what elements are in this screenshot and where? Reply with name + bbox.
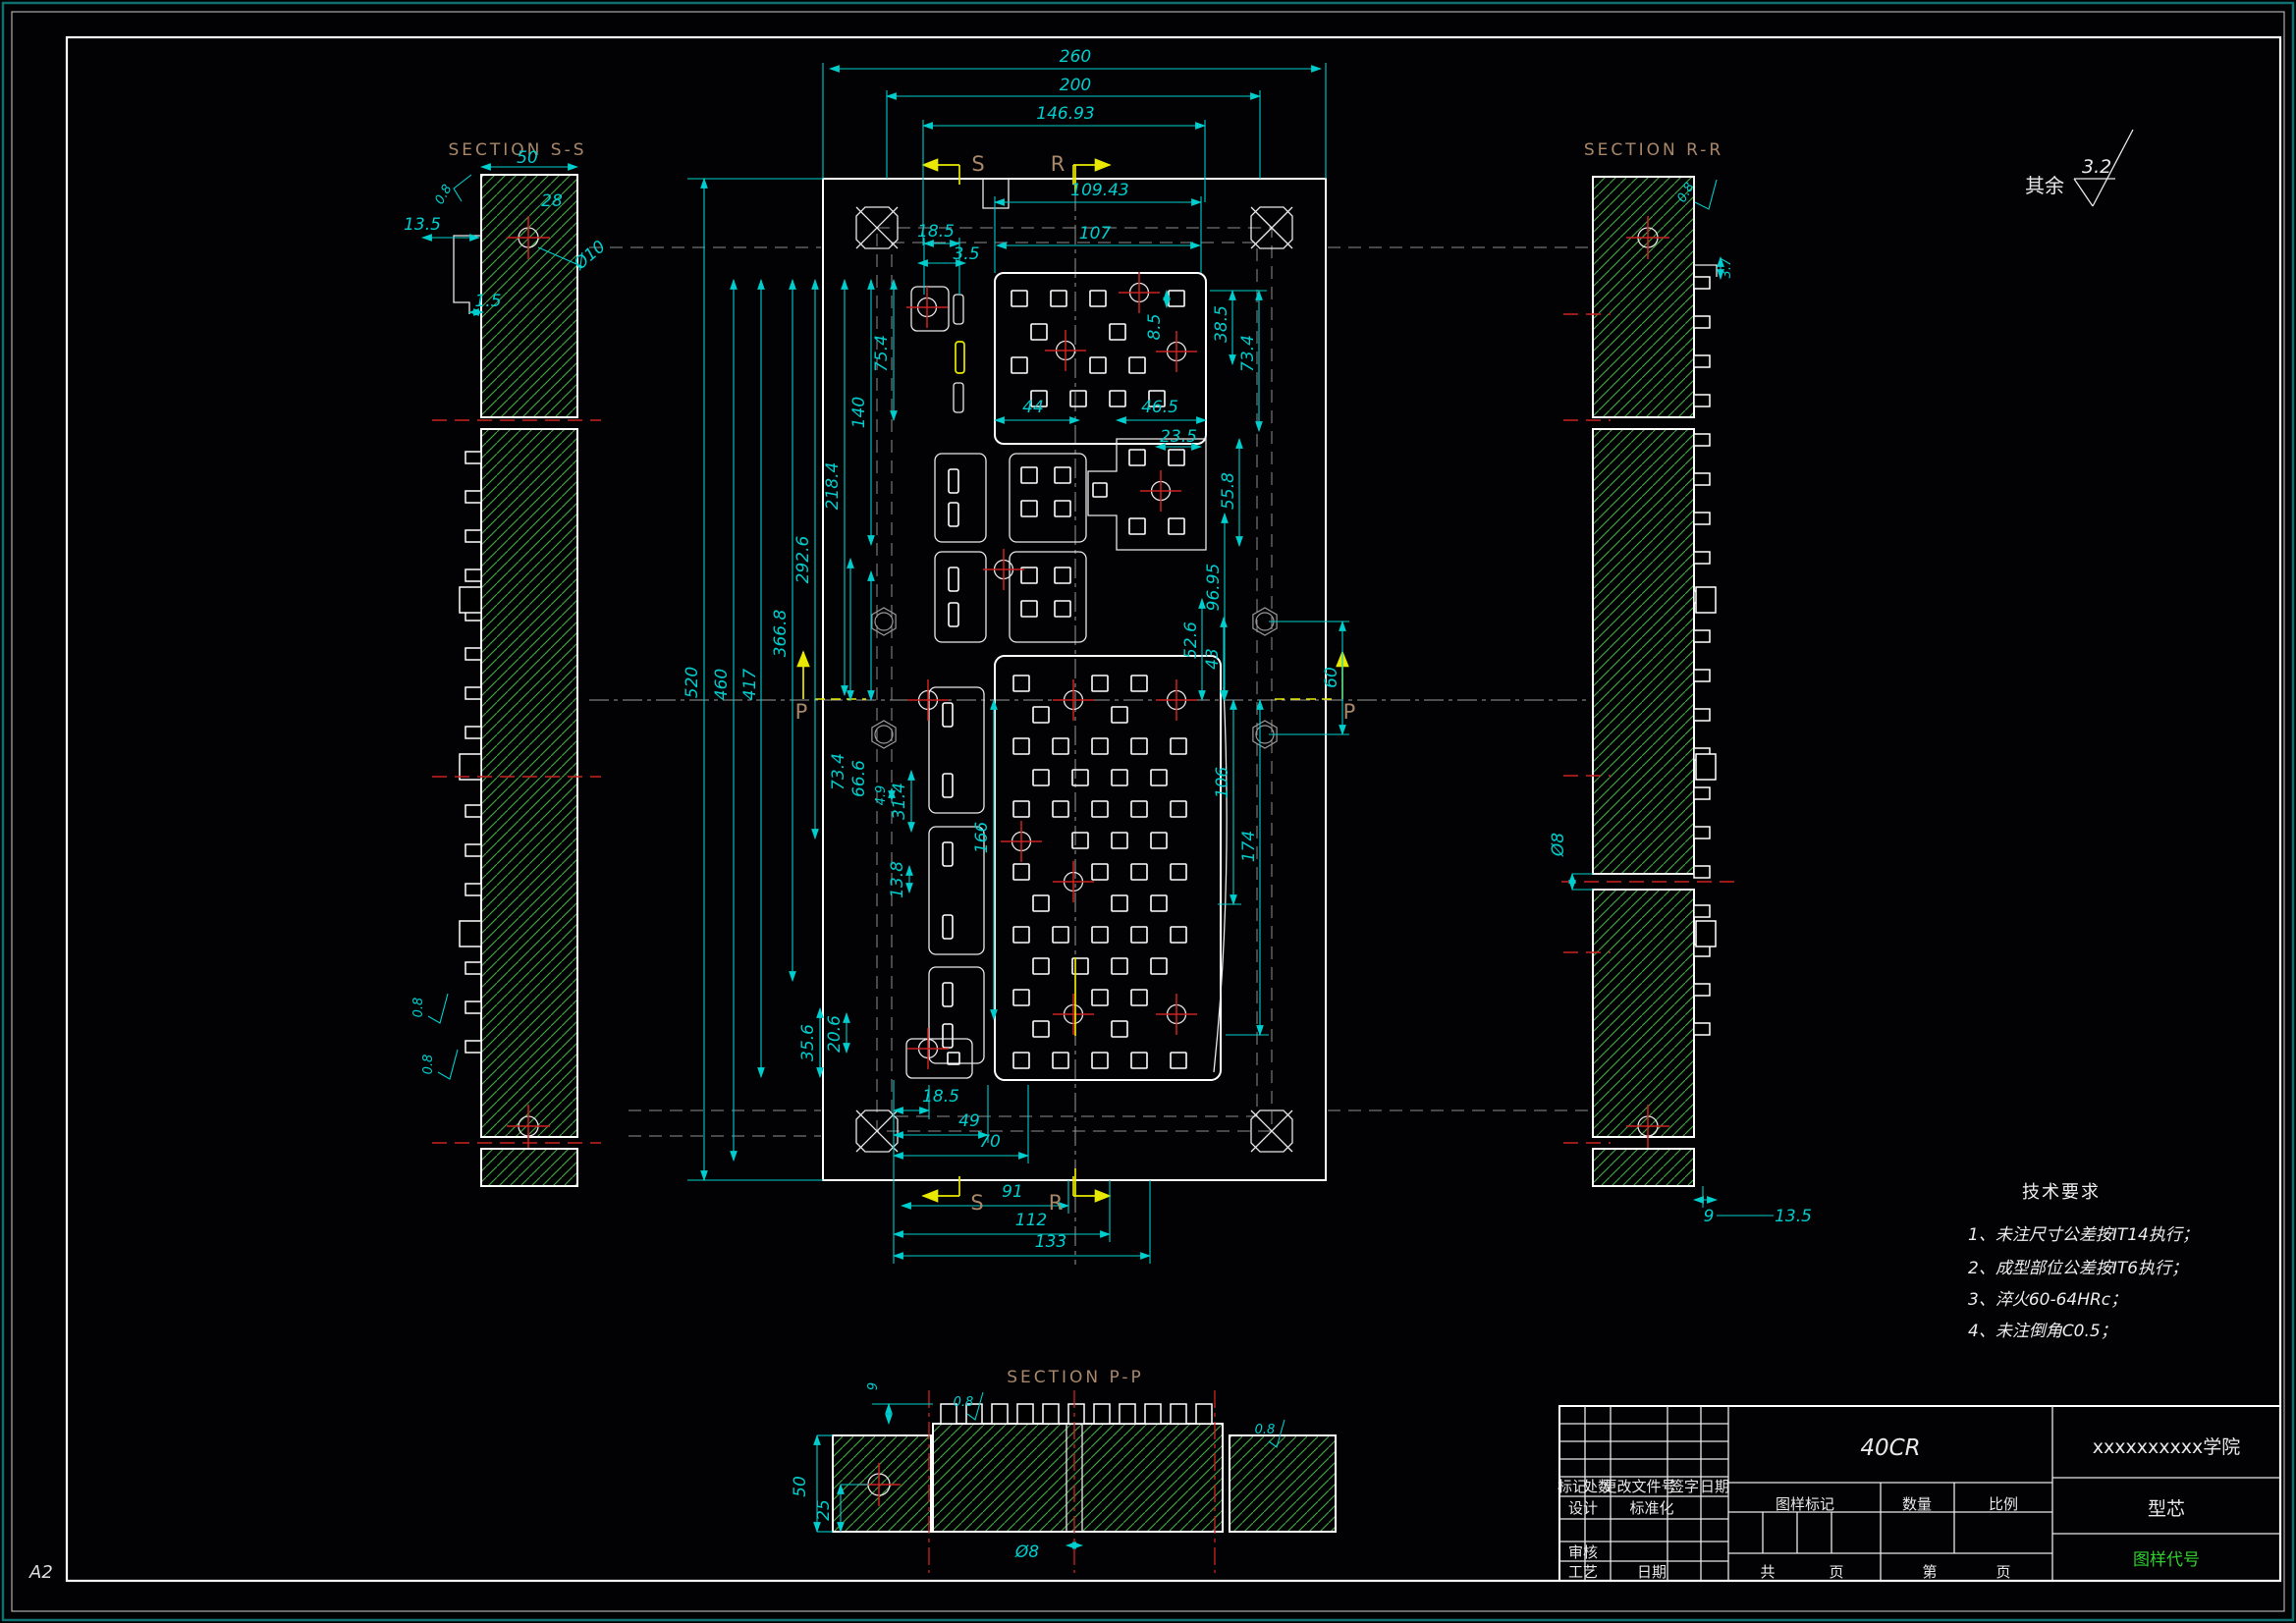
comb-tooth [1694,355,1710,367]
dim-label: P [1343,700,1356,724]
comb-tooth [465,1041,481,1053]
key-hole [1033,707,1049,723]
key-hole [1021,501,1037,516]
key-hole [1092,927,1108,943]
tb-drawing-code: 图样代号 [2133,1550,2200,1570]
key-hole [1171,1053,1186,1068]
tech-req-item: 2、成型部位公差按IT6执行； [1968,1259,2188,1278]
comb-tooth [1043,1404,1059,1424]
key-hole [1151,958,1167,974]
key-hole [1169,450,1184,465]
dim-label: 4.9 [874,785,889,806]
dim-label: 1.5 [474,292,501,311]
tb-header-drawing-mark: 图样标记 [1776,1495,1834,1513]
hatch-block [1593,1149,1694,1186]
comb-tooth [465,452,481,463]
dim-label: 18.5 [922,1087,959,1107]
key-hole [1169,518,1184,534]
key-hole [1112,895,1127,911]
key-hole [1053,801,1068,817]
section-pp-view: SECTION P-P [817,1368,1336,1573]
comb-tooth [1694,395,1710,406]
dim-label: 460 [712,669,732,700]
dim-label: 70 [979,1132,1001,1152]
hatch-block [481,1149,577,1186]
bolt-circle-icon [875,726,893,743]
key-hole [1055,467,1070,483]
key-hole [1013,801,1029,817]
key-slot-cut [956,342,964,373]
dim-label: 96.95 [1204,564,1224,612]
section-ss-view: SECTION S-S [422,140,601,1186]
dim-label: 112 [1015,1211,1047,1230]
section-rr-title: SECTION R-R [1584,140,1723,160]
key-hole [1013,738,1029,754]
key-hole [1151,833,1167,848]
key-hole [1011,357,1027,373]
dim-label: 55.8 [1219,472,1238,510]
key-hole [1013,864,1029,880]
tb-header-date: 日期 [1700,1478,1729,1495]
dim-label: R [1051,152,1066,176]
key-hole [1131,1053,1147,1068]
key-hole [1090,357,1106,373]
dim-label: 91 [1002,1182,1023,1202]
roughness-note: 其余 3.2 [2025,130,2133,206]
tb-material: 40CR [1860,1435,1920,1461]
dim-label: 140 [849,397,869,428]
dim-label: 13.5 [404,215,441,235]
key-slot [943,983,953,1006]
roughness-check-icon [1695,180,1717,209]
roughness-check-icon [454,175,471,201]
dim-label: 23.5 [1160,427,1197,447]
core-island-outline [906,1039,972,1078]
key-hole [1072,770,1088,785]
notch [460,921,481,947]
title-block: 标记 处数 更改文件号 签字 日期 设计 标准化 审核 工艺 日期 40CR 图… [1558,1406,2280,1581]
tb-page-unit1: 页 [1829,1563,1843,1581]
dim-label: R [1049,1191,1064,1215]
tb-part-name: 型芯 [2148,1498,2185,1520]
key-hole [1131,990,1147,1005]
dim-label: 44 [1022,398,1044,417]
inner-frame [67,37,2280,1581]
hatch-block [1593,429,1694,874]
dim-label: 66.6 [849,760,869,797]
comb-tooth [1017,1404,1033,1424]
dim-label: S [971,152,984,176]
key-hole [1151,895,1167,911]
dim-label: 35.6 [798,1024,818,1061]
main-plan-view [589,165,1589,1265]
roughness-value: 3.2 [2082,156,2111,178]
comb-tooth [465,687,481,699]
section-pp-title: SECTION P-P [1007,1368,1144,1387]
key-hole [1171,927,1186,943]
key-hole [1112,707,1127,723]
comb-tooth [1120,1404,1135,1424]
key-hole [1033,958,1049,974]
key-slot [943,774,953,797]
dim-label: 0.8 [432,183,455,207]
tb-header-scale: 比例 [1989,1495,2018,1513]
dim-label: 8.5 [1145,313,1165,340]
key-hole [1090,291,1106,306]
dim-label: 106 [1213,767,1232,799]
comb-tooth [465,884,481,895]
dim-label: Ø8 [1014,1542,1039,1562]
notch [1696,587,1716,613]
dim-label: 13.5 [1775,1207,1812,1226]
dim-label: 52.6 [1181,622,1201,659]
key-hole [1053,1053,1068,1068]
dim-label: 9 [1704,1207,1715,1226]
dim-label: 292.6 [793,535,813,583]
comb-tooth [992,1404,1008,1424]
key-hole [1055,501,1070,516]
comb-tooth [465,569,481,581]
roughness-prefix: 其余 [2025,174,2064,197]
comb-tooth [1094,1404,1110,1424]
dim-label: 174 [1239,831,1259,862]
key-hole [1013,927,1029,943]
comb-tooth [1694,709,1710,721]
key-hole [1171,738,1186,754]
key-hole [1033,1021,1049,1037]
dim-label: 133 [1035,1232,1066,1252]
key-hole [1112,958,1127,974]
key-hole [1013,676,1029,691]
cad-drawing-sheet: A2 其余 3.2 SECTION S-S SECTION R-R SECTIO… [0,0,2296,1623]
key-slot [943,703,953,727]
key-hole [1021,601,1037,617]
notch [1696,921,1716,947]
hatch-block [933,1424,1223,1532]
section-rr-view: SECTION R-R [1561,140,1774,1216]
key-hole [1033,770,1049,785]
key-hole [1053,738,1068,754]
dim-label: 109.43 [1070,181,1128,200]
dim-label: 166 [972,822,992,854]
hatch-block [481,429,577,1137]
key-hole [1112,833,1127,848]
key-hole [1011,291,1027,306]
roughness-check-icon [438,1050,458,1079]
key-hole [1092,738,1108,754]
key-hole [1033,895,1049,911]
dim-label: 18.5 [917,222,955,242]
comb-tooth [465,1001,481,1013]
tb-page-total: 共 [1760,1563,1775,1581]
dim-label: 107 [1079,224,1112,243]
pocket-dashed [877,228,1272,1131]
key-slot [943,915,953,939]
dim-label: 260 [1060,47,1091,67]
key-hole [1013,990,1029,1005]
tb-page-unit2: 页 [1995,1563,2010,1581]
dim-label: 0.8 [421,1055,436,1075]
core-island-outline [1010,454,1086,542]
comb-tooth [1068,1404,1084,1424]
comb-tooth [1694,905,1710,917]
tech-requirements: 技术要求 1、未注尺寸公差按IT14执行； 2、成型部位公差按IT6执行； 3、… [1968,1182,2199,1341]
dim-label: 50 [791,1476,810,1497]
core-island-outline [929,687,984,813]
sheet-format-label: A2 [28,1562,53,1583]
key-slot [949,603,958,626]
key-hole [1169,291,1184,306]
key-hole [1171,801,1186,817]
comb-tooth [1694,1023,1710,1035]
tb-header-quantity: 数量 [1902,1495,1932,1513]
hatch-block [1593,177,1694,417]
dim-label: 73.4 [829,753,848,790]
key-slot [943,1024,953,1048]
dim-label: 60 [1322,667,1341,688]
key-hole [948,1053,959,1064]
dim-label: 417 [740,669,760,701]
key-hole [1092,1053,1108,1068]
comb-tooth [1694,670,1710,681]
comb-tooth [1694,513,1710,524]
tech-req-item: 1、未注尺寸公差按IT14执行； [1968,1225,2199,1245]
key-slot [949,568,958,591]
dim-label: 25 [814,1499,834,1521]
key-hole [1151,770,1167,785]
key-hole [1055,568,1070,583]
comb-tooth [465,962,481,974]
key-hole [1021,467,1037,483]
key-hole [1131,676,1147,691]
dim-label: 3.5 [953,244,979,264]
tb-header-sign: 签字 [1669,1478,1699,1495]
key-slot [954,295,963,324]
dim-label: 31.4 [890,783,909,820]
dim-label: 73.4 [1238,335,1258,372]
key-hole [1093,483,1107,497]
key-hole [1131,927,1147,943]
comb-tooth [465,844,481,856]
tb-role-design: 设计 [1568,1499,1598,1517]
dim-label: 520 [683,667,702,698]
cad-canvas: A2 其余 3.2 SECTION S-S SECTION R-R SECTIO… [0,0,2296,1623]
edge-tab [983,179,1009,208]
notch [460,754,481,780]
dim-label: 0.8 [411,998,426,1018]
comb-tooth [465,491,481,503]
key-hole [1112,770,1127,785]
core-island-outline [1010,552,1086,642]
comb-tooth [1145,1404,1161,1424]
key-hole [1110,391,1125,406]
key-hole [1055,601,1070,617]
key-slot [943,842,953,866]
bolt-circle-icon [875,613,893,630]
key-hole [1013,1053,1029,1068]
dim-label: 75.4 [872,335,892,372]
comb-tooth [465,805,481,817]
core-island-outline [935,454,986,542]
key-hole [1110,324,1125,340]
key-hole [1053,927,1068,943]
dim-label: 0.8 [954,1395,974,1410]
dim-label: 28 [541,191,563,211]
dim-label: Ø8 [1549,833,1568,857]
key-slot [949,503,958,526]
tb-role-process: 工艺 [1568,1563,1598,1581]
key-hole [1131,738,1147,754]
comb-tooth [465,727,481,738]
comb-tooth [465,648,481,660]
dim-label: 146.93 [1036,104,1094,124]
dim-label: 9 [866,1382,881,1390]
outer-frame [12,12,2284,1611]
hatch-block [1230,1435,1336,1532]
key-hole [1092,864,1108,880]
key-hole [1131,801,1147,817]
dim-label: 366.8 [771,609,791,657]
tech-req-title: 技术要求 [2022,1182,2101,1203]
tech-req-item: 3、淬火60-64HRc； [1968,1290,2127,1310]
comb-tooth [1694,277,1710,289]
dim-label: P [795,700,808,724]
comb-tooth [1694,434,1710,446]
tb-page-no: 第 [1922,1563,1937,1581]
dim-label: 46.5 [1141,398,1178,417]
comb-tooth [1694,827,1710,839]
comb-tooth [1694,787,1710,799]
tb-role-review: 审核 [1568,1543,1598,1561]
key-slot [954,383,963,412]
comb-tooth [1694,473,1710,485]
key-hole [1092,801,1108,817]
cross-island-outline [1088,439,1206,550]
key-hole [1072,833,1088,848]
dim-label: S [970,1191,983,1215]
key-hole [1092,676,1108,691]
key-hole [1092,990,1108,1005]
dim-label: 218.4 [823,462,843,511]
mold-plate-outline [823,179,1326,1180]
comb-tooth [1694,552,1710,564]
comb-tooth [1694,316,1710,328]
comb-tooth [1694,630,1710,642]
comb-tooth [1171,1404,1186,1424]
dim-label: 50 [517,148,538,168]
dim-label: 200 [1060,76,1091,95]
key-hole [1112,1021,1127,1037]
comb-tooth [1694,984,1710,996]
key-hole [1051,291,1066,306]
key-hole [1031,324,1047,340]
roughness-check-icon [428,994,448,1023]
tb-company: xxxxxxxxxx学院 [2093,1436,2240,1458]
key-hole [1070,391,1086,406]
dim-label: 38.5 [1212,305,1231,343]
dim-label: 43 [1203,648,1223,670]
hatch-block [1593,890,1694,1137]
dim-label: 3.7 [1720,257,1734,278]
dim-label: 0.8 [1255,1423,1276,1437]
comb-tooth [1196,1404,1212,1424]
dim-label: 20.6 [825,1015,845,1053]
key-hole [1129,518,1145,534]
key-hole [1131,864,1147,880]
tb-role-date: 日期 [1637,1563,1667,1581]
notch [460,587,481,613]
dim-label: 13.8 [888,861,907,898]
notch [1696,754,1716,780]
tech-req-item: 4、未注倒角C0.5； [1968,1322,2117,1341]
comb-tooth [1694,866,1710,878]
key-slot [949,469,958,493]
comb-tooth [465,530,481,542]
key-hole [1129,357,1145,373]
hatch-block [833,1435,931,1532]
dim-label: 49 [958,1111,980,1131]
core-island-outline [911,287,949,331]
key-hole [1129,450,1145,465]
key-hole [1171,864,1186,880]
tb-header-changefile: 更改文件号 [1602,1478,1675,1495]
core-island-outline [935,552,986,642]
